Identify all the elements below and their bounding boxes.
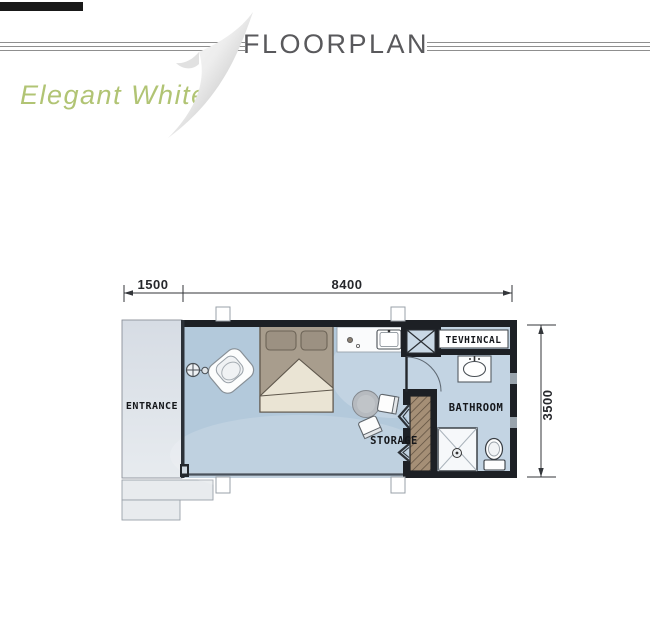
bathroom-sink: [458, 356, 491, 382]
dim-arrow: [538, 468, 543, 477]
sink-tap-dot: [478, 358, 480, 360]
wall-storage-bathroom: [431, 390, 437, 471]
wall-tab: [216, 307, 230, 321]
page-curl-icon: [158, 4, 262, 146]
table-top-inner: [357, 395, 375, 413]
wall-left-edge: [181, 320, 185, 478]
page-title: FLOORPLAN: [243, 29, 423, 60]
wall-tab: [391, 477, 405, 493]
shower-drain-dot: [456, 452, 459, 455]
dim-arrow: [124, 290, 133, 296]
window-segment: [510, 373, 517, 384]
wardrobe: [410, 396, 431, 471]
page: { "header": { "title": "FLOORPLAN", "var…: [0, 0, 650, 632]
toilet-tank: [484, 460, 505, 470]
dimension-top: [124, 285, 512, 302]
entrance-step-upper: [122, 480, 213, 500]
bed: [260, 326, 333, 412]
wall-technical-bottom: [435, 349, 510, 355]
dim-arrow: [503, 290, 512, 296]
bathroom-label: BATHROOM: [449, 402, 504, 414]
chair: [377, 394, 399, 414]
wall-bottom-bathroom: [403, 471, 517, 478]
dim-module-depth: 3500: [540, 390, 555, 421]
counter-item: [347, 337, 352, 342]
wall-top: [182, 320, 517, 327]
lamp-base: [202, 367, 208, 373]
wall-tab: [216, 477, 230, 493]
shower: [438, 428, 477, 471]
window-segment: [510, 417, 517, 428]
storage-label: STORAGE: [370, 435, 418, 447]
side-table: [353, 391, 380, 418]
curl-shape: [168, 12, 253, 138]
counter-faucet: [388, 330, 391, 333]
counter-item: [356, 344, 359, 347]
dim-entrance-width: 1500: [138, 277, 169, 292]
service-shaft: [407, 330, 435, 353]
entrance-step-lower: [122, 500, 180, 520]
wall-right: [510, 320, 517, 478]
technical-label: TEVHINCAL: [446, 335, 502, 346]
wall-storage-c: [403, 461, 410, 478]
top-edge-bar: [0, 2, 83, 11]
curl-scallop: [176, 52, 199, 68]
floorplan-canvas: TEVHINCAL: [100, 250, 570, 550]
toilet-bowl-inner: [489, 442, 500, 456]
counter: [337, 327, 403, 352]
dim-module-width: 8400: [332, 277, 363, 292]
entrance-label: ENTRANCE: [126, 401, 178, 412]
bed-pillow: [266, 331, 296, 350]
wall-tab: [391, 307, 405, 321]
dim-arrow: [538, 325, 543, 334]
sink-tap-dot: [469, 358, 471, 360]
corner-post-inner: [182, 467, 187, 474]
bed-pillow: [301, 331, 327, 350]
divider-line-right: [427, 42, 650, 52]
sink-basin: [464, 362, 486, 377]
